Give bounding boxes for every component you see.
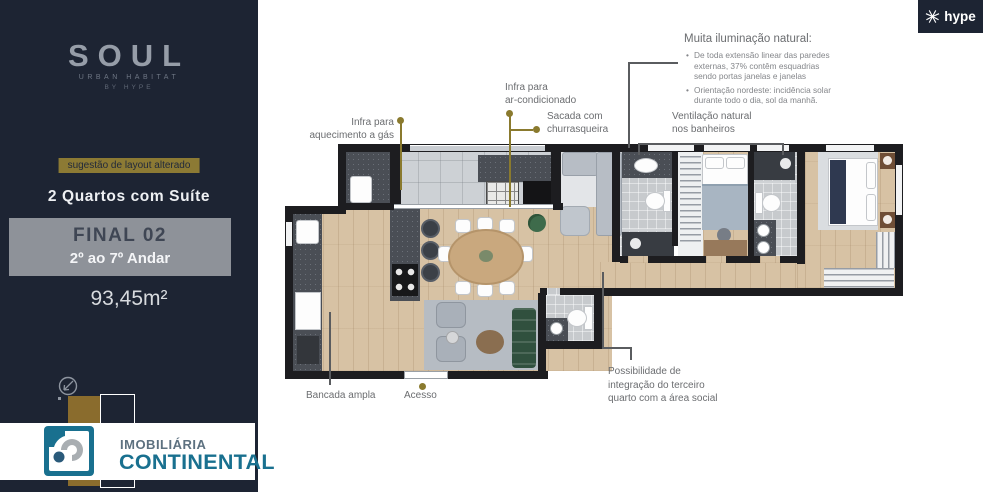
wall bbox=[346, 203, 394, 210]
callout-dot-bbq bbox=[533, 126, 540, 133]
label-bbq: Sacada com churrasqueira bbox=[547, 110, 632, 136]
bar-stool bbox=[421, 263, 440, 282]
label-entry: Acesso bbox=[404, 389, 454, 402]
unit-floors: 2º ao 7º Andar bbox=[9, 250, 231, 267]
wall bbox=[287, 206, 346, 214]
callout-line-integration bbox=[602, 347, 632, 349]
closet-hanging-clothes bbox=[680, 156, 701, 242]
lighting-bullet: Orientação nordeste: incidência solar du… bbox=[686, 85, 842, 106]
kitchen-sink-2 bbox=[350, 176, 372, 203]
kitchen-fridge bbox=[295, 292, 321, 330]
hype-sparkle-icon bbox=[925, 9, 940, 24]
wall bbox=[594, 288, 903, 296]
master-wardrobe-side bbox=[876, 232, 895, 268]
unit-number-box: FINAL 02 2º ao 7º Andar bbox=[9, 218, 231, 276]
lighting-note-title: Muita iluminação natural: bbox=[684, 33, 812, 45]
window bbox=[757, 145, 789, 151]
callout-line-lighting bbox=[628, 62, 678, 64]
callout-line-vent bbox=[782, 143, 784, 155]
bath2-drain bbox=[780, 158, 791, 169]
bbq-cabinet bbox=[523, 181, 552, 206]
wall bbox=[612, 144, 620, 262]
side-table bbox=[446, 331, 459, 344]
wall bbox=[553, 203, 563, 210]
bath2-sink bbox=[757, 241, 770, 254]
lighting-note-list: De toda extensão linear das paredes exte… bbox=[686, 50, 842, 109]
callout-line-vent bbox=[638, 143, 640, 155]
lighting-bullet: De toda extensão linear das paredes exte… bbox=[686, 50, 842, 82]
label-integration: Possibilidade de integração do terceiro … bbox=[608, 365, 738, 406]
hype-logo-box: hype bbox=[918, 0, 983, 33]
sliding-glass-door bbox=[394, 204, 554, 209]
callout-line-vent bbox=[638, 143, 784, 145]
bath2-toilet bbox=[762, 194, 781, 212]
door-gap bbox=[628, 256, 648, 263]
project-logo-byline: BY HYPE bbox=[0, 84, 258, 91]
callout-line-bbq bbox=[511, 129, 533, 131]
floor-corridor bbox=[600, 262, 797, 290]
lamp bbox=[883, 156, 892, 165]
unit-area: 93,45m² bbox=[0, 287, 258, 311]
realtor-name-bottom: CONTINENTAL bbox=[119, 450, 275, 475]
callout-dot-gas bbox=[397, 117, 404, 124]
wall bbox=[338, 144, 346, 214]
bath1-toilet bbox=[645, 192, 665, 210]
lavabo-toilet bbox=[567, 309, 587, 327]
layout-altered-badge: sugestão de layout alterado bbox=[59, 158, 200, 173]
sectional-sofa-top bbox=[562, 152, 598, 176]
realtor-logo-icon bbox=[44, 426, 94, 476]
kitchen-oven bbox=[297, 336, 319, 364]
bbq-counter bbox=[478, 155, 556, 182]
balcony-glazing bbox=[410, 145, 545, 151]
realtor-band: IMOBILIÁRIA CONTINENTAL bbox=[0, 423, 255, 480]
window bbox=[648, 145, 694, 151]
bed2-blanket bbox=[702, 184, 748, 230]
wall bbox=[672, 152, 678, 246]
table-centerpiece bbox=[479, 250, 493, 262]
plant bbox=[528, 214, 546, 232]
armchair bbox=[436, 302, 466, 328]
callout-dot-ac bbox=[506, 110, 513, 117]
entry-door bbox=[404, 371, 448, 379]
wall bbox=[594, 293, 602, 349]
dining-chair bbox=[455, 281, 471, 295]
lavabo-sink bbox=[550, 322, 563, 335]
dining-chair bbox=[477, 283, 493, 297]
door-gap bbox=[706, 256, 726, 263]
callout-line-counter bbox=[329, 312, 331, 385]
bed2-desk bbox=[704, 240, 747, 256]
callout-line-integration bbox=[630, 347, 632, 360]
door-gap bbox=[797, 264, 805, 288]
coffee-table bbox=[476, 330, 504, 354]
wall bbox=[538, 341, 602, 349]
green-sofa bbox=[512, 308, 536, 368]
label-counter: Bancada ampla bbox=[306, 389, 401, 402]
wall bbox=[748, 152, 754, 256]
master-pillow bbox=[866, 194, 876, 221]
barbecue-grill bbox=[486, 181, 519, 206]
bar-stool bbox=[421, 219, 440, 238]
bed2-pillow bbox=[705, 157, 724, 169]
bath2-sink bbox=[757, 224, 770, 237]
label-ac: Infra para ar-condicionado bbox=[505, 81, 600, 107]
wall bbox=[551, 144, 561, 207]
callout-line-gas bbox=[400, 122, 402, 190]
project-logo: SOUL bbox=[0, 38, 258, 74]
unit-number: FINAL 02 bbox=[9, 225, 231, 247]
hype-logo-text: hype bbox=[944, 9, 976, 24]
sidebar: SOUL URBAN HABITAT BY HYPE sugestão de l… bbox=[0, 0, 258, 492]
kitchen-sink bbox=[296, 220, 319, 244]
project-logo-subtitle: URBAN HABITAT bbox=[0, 74, 258, 81]
wall bbox=[538, 293, 546, 379]
master-wardrobe-bottom bbox=[824, 268, 894, 288]
callout-line-integration bbox=[602, 272, 604, 348]
label-gas: Infra para aquecimento a gás bbox=[290, 116, 394, 142]
dining-chair bbox=[499, 281, 515, 295]
lamp bbox=[883, 215, 892, 224]
brochure-page: SOUL URBAN HABITAT BY HYPE sugestão de l… bbox=[0, 0, 983, 492]
armchair-chaise bbox=[560, 206, 590, 236]
unit-type-title: 2 Quartos com Suíte bbox=[0, 188, 258, 206]
window bbox=[704, 145, 750, 151]
bed2-pillow bbox=[726, 157, 745, 169]
bath2-shower-glass bbox=[754, 181, 795, 183]
bath1-sink bbox=[634, 158, 658, 173]
bath1-drain bbox=[630, 238, 641, 249]
master-bed-runner bbox=[830, 160, 846, 224]
window bbox=[826, 145, 874, 151]
door-gap bbox=[547, 288, 560, 295]
cooktop bbox=[392, 264, 418, 296]
master-pillow bbox=[866, 162, 876, 189]
door-gap bbox=[760, 256, 780, 263]
label-vent: Ventilação natural nos banheiros bbox=[672, 110, 787, 136]
bath1-shower-glass bbox=[622, 229, 674, 231]
window bbox=[896, 165, 902, 215]
window bbox=[286, 222, 292, 246]
